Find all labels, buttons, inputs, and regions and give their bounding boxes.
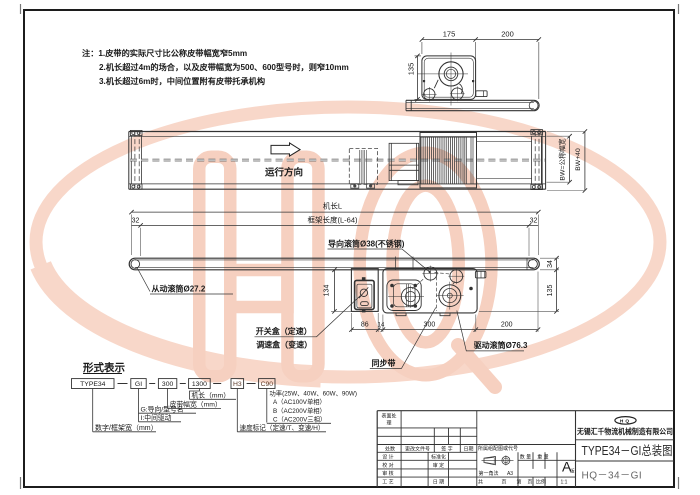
svg-text:版: 版 — [570, 468, 575, 475]
svg-text:比例: 比例 — [536, 479, 546, 486]
svg-text:135: 135 — [547, 285, 554, 297]
svg-text:HQ－34－GI: HQ－34－GI — [582, 471, 643, 482]
svg-text:调速盒（变速）: 调速盒（变速） — [256, 340, 312, 350]
svg-text:32: 32 — [530, 218, 538, 225]
svg-text:运行方向: 运行方向 — [265, 167, 303, 179]
svg-text:1:1: 1:1 — [561, 480, 568, 486]
svg-text:日期: 日期 — [463, 447, 473, 453]
svg-text:导向滚筒Ø38(不锈钢): 导向滚筒Ø38(不锈钢) — [328, 239, 405, 249]
svg-text:G:导向/型号名: G:导向/型号名 — [141, 404, 184, 413]
svg-text:处数: 处数 — [385, 446, 395, 453]
svg-text:200: 200 — [501, 30, 514, 39]
svg-text:300: 300 — [424, 321, 436, 328]
svg-text:H3: H3 — [233, 381, 242, 388]
svg-text:1300: 1300 — [192, 381, 207, 388]
svg-text:3.机长超过6m时，中间位置附有皮带托承机构: 3.机长超过6m时，中间位置附有皮带托承机构 — [99, 76, 265, 86]
svg-text:重 量: 重 量 — [537, 453, 548, 460]
svg-text:BW+40: BW+40 — [575, 148, 582, 171]
svg-text:BW=公称幅宽: BW=公称幅宽 — [558, 138, 567, 180]
svg-text:I:中间驱动: I:中间驱动 — [141, 413, 172, 422]
svg-text:功率(25W、40W、60W、90W): 功率(25W、40W、60W、90W) — [270, 389, 357, 398]
svg-text:更改文件号: 更改文件号 — [405, 446, 430, 453]
svg-text:GI: GI — [135, 381, 142, 388]
svg-text:86: 86 — [361, 321, 369, 328]
svg-text:无锡汇千物流机械制造有限公司: 无锡汇千物流机械制造有限公司 — [576, 427, 673, 436]
svg-text:HQ: HQ — [620, 418, 631, 424]
svg-text:机长L: 机长L — [323, 201, 342, 211]
svg-text:300: 300 — [162, 381, 174, 388]
svg-text:C（AC200V三相）: C（AC200V三相） — [273, 414, 326, 423]
svg-text:A3: A3 — [507, 471, 513, 477]
svg-text:14: 14 — [378, 322, 385, 328]
svg-text:机长（mm）: 机长（mm） — [192, 390, 231, 399]
svg-text:同步带: 同步带 — [372, 358, 396, 368]
svg-text:框架长度(L-64): 框架长度(L-64) — [307, 215, 358, 225]
svg-text:共: 共 — [478, 479, 483, 486]
svg-text:注：1.皮带的实际尺寸比公称皮带幅宽窄5mm: 注：1.皮带的实际尺寸比公称皮带幅宽窄5mm — [82, 48, 247, 58]
svg-text:签 字: 签 字 — [441, 446, 452, 453]
svg-text:32: 32 — [132, 218, 140, 225]
svg-text:驱动滚筒Ø76.3: 驱动滚筒Ø76.3 — [474, 340, 528, 350]
svg-text:B（AC200V单相）: B（AC200V单相） — [273, 406, 326, 415]
svg-text:第一角法: 第一角法 — [478, 470, 498, 477]
svg-text:第: 第 — [516, 479, 521, 486]
svg-text:TYPE34－GI总装图: TYPE34－GI总装图 — [582, 444, 673, 458]
svg-text:审 定: 审 定 — [433, 462, 444, 469]
svg-text:TYPE34: TYPE34 — [80, 381, 106, 388]
svg-text:设 计: 设 计 — [382, 454, 393, 461]
svg-text:C90: C90 — [261, 381, 274, 388]
svg-text:审 核: 审 核 — [382, 470, 393, 477]
svg-text:从动滚筒Ø27.2: 从动滚筒Ø27.2 — [152, 284, 206, 294]
svg-text:所属组配图或代号: 所属组配图或代号 — [478, 445, 518, 452]
svg-text:形式表示: 形式表示 — [83, 361, 125, 374]
svg-text:数字/框架宽（mm）: 数字/框架宽（mm） — [95, 423, 158, 432]
svg-text:速度标记（定速/T、变速/H）: 速度标记（定速/T、变速/H） — [240, 423, 325, 432]
svg-text:134: 134 — [323, 285, 330, 297]
svg-text:2.机长超过4m的场合，以及皮带幅宽为500、600型号时，: 2.机长超过4m的场合，以及皮带幅宽为500、600型号时，则窄10mm — [99, 62, 349, 72]
svg-text:工 艺: 工 艺 — [382, 480, 393, 486]
svg-text:135: 135 — [407, 63, 416, 76]
svg-text:理: 理 — [386, 421, 391, 427]
svg-text:175: 175 — [443, 30, 456, 39]
svg-text:A（AC100V单相）: A（AC100V单相） — [273, 397, 326, 406]
svg-text:标准化: 标准化 — [431, 454, 446, 461]
svg-text:开关盒（定速）: 开关盒（定速） — [256, 326, 312, 336]
svg-text:页: 页 — [501, 480, 506, 486]
svg-text:200: 200 — [501, 321, 513, 328]
svg-text:34: 34 — [547, 260, 554, 268]
svg-text:页: 页 — [527, 480, 532, 486]
svg-text:校 对: 校 对 — [382, 462, 393, 469]
svg-text:日 期: 日 期 — [433, 480, 444, 486]
svg-text:数 量: 数 量 — [520, 453, 531, 460]
svg-text:表面处: 表面处 — [381, 413, 396, 420]
